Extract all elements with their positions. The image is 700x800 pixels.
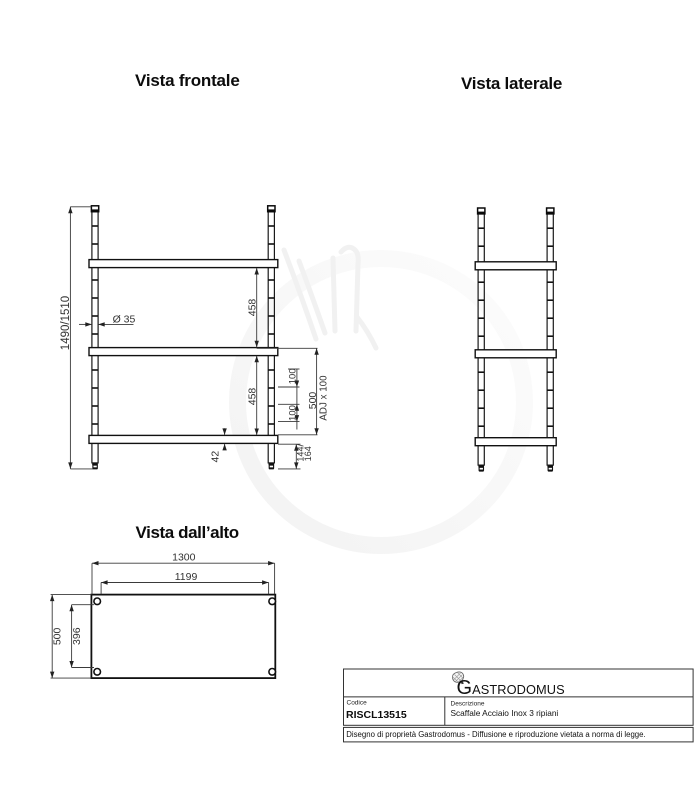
svg-text:Ø 35: Ø 35 xyxy=(113,314,136,326)
svg-text:100: 100 xyxy=(288,405,299,421)
svg-text:1300: 1300 xyxy=(172,552,196,564)
svg-text:500: 500 xyxy=(307,392,319,410)
svg-text:Vista dall’alto: Vista dall’alto xyxy=(136,523,239,542)
svg-text:ADJ x 100: ADJ x 100 xyxy=(318,375,329,421)
svg-text:1490/1510: 1490/1510 xyxy=(60,296,72,350)
svg-text:Scaffale Acciaio Inox 3 ripian: Scaffale Acciaio Inox 3 ripiani xyxy=(451,708,559,718)
svg-text:42: 42 xyxy=(210,451,222,463)
svg-text:Disegno di proprietà Gastrodom: Disegno di proprietà Gastrodomus - Diffu… xyxy=(346,730,645,739)
svg-text:1199: 1199 xyxy=(175,571,198,583)
svg-text:458: 458 xyxy=(246,388,258,406)
svg-text:164: 164 xyxy=(303,446,313,461)
svg-text:RISCL13515: RISCL13515 xyxy=(346,709,407,721)
svg-text:458: 458 xyxy=(246,299,258,317)
svg-text:Vista frontale: Vista frontale xyxy=(135,71,240,90)
svg-text:Descrizione: Descrizione xyxy=(451,700,485,707)
svg-text:100: 100 xyxy=(288,368,299,384)
svg-text:396: 396 xyxy=(71,627,83,645)
svg-text:500: 500 xyxy=(51,627,63,645)
svg-text:Vista laterale: Vista laterale xyxy=(461,74,562,93)
svg-text:Codice: Codice xyxy=(347,700,368,707)
